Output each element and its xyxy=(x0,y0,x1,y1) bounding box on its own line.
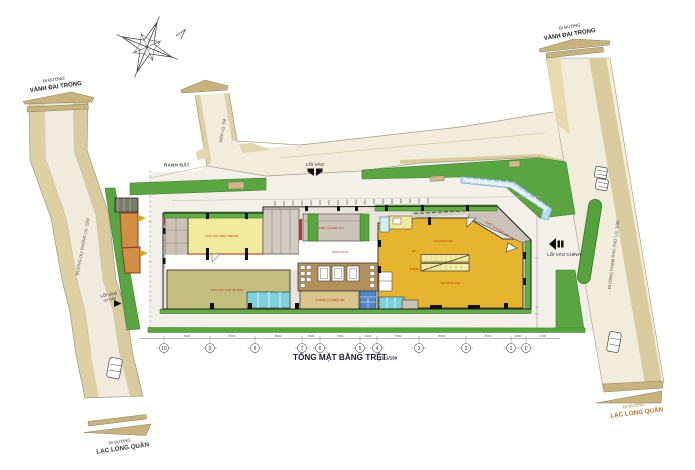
svg-text:8000: 8000 xyxy=(439,334,446,338)
svg-text:3000: 3000 xyxy=(308,334,315,338)
svg-text:1': 1' xyxy=(524,346,528,352)
svg-text:PHÒNG KT ĐIỆN HĐ: PHÒNG KT ĐIỆN HĐ xyxy=(316,297,346,302)
svg-text:TL:1/150: TL:1/150 xyxy=(379,356,398,361)
svg-text:10: 10 xyxy=(161,346,167,352)
svg-text:THƯƠNG MẠI: THƯƠNG MẠI xyxy=(440,281,460,285)
svg-text:8000: 8000 xyxy=(229,334,236,338)
svg-text:2: 2 xyxy=(465,346,468,352)
svg-text:4: 4 xyxy=(376,346,379,352)
svg-text:8200: 8200 xyxy=(184,334,191,338)
svg-text:SẢNH CHUNG CƯ: SẢNH CHUNG CƯ xyxy=(318,225,344,230)
svg-text:7500: 7500 xyxy=(395,334,402,338)
svg-text:3: 3 xyxy=(418,346,421,352)
svg-text:KHU VỰC GIỮ XE ĐẠP: KHU VỰC GIỮ XE ĐẠP xyxy=(211,287,243,292)
svg-text:8: 8 xyxy=(254,346,257,352)
svg-text:6: 6 xyxy=(319,346,322,352)
svg-text:LỐI VÀO: LỐI VÀO xyxy=(306,161,325,167)
svg-text:8000: 8000 xyxy=(485,334,492,338)
svg-text:7: 7 xyxy=(301,346,304,352)
svg-text:SẢNH ĐÓN: SẢNH ĐÓN xyxy=(332,249,348,254)
svg-text:5: 5 xyxy=(359,346,362,352)
svg-text:KHU VUI CHƠI TRẺ EM: KHU VUI CHƠI TRẺ EM xyxy=(206,233,239,238)
svg-text:THƯƠNG MẠI: THƯƠNG MẠI xyxy=(433,239,453,243)
svg-text:LỐI VÀO CHÍNH: LỐI VÀO CHÍNH xyxy=(547,251,581,257)
svg-text:1: 1 xyxy=(510,346,513,352)
svg-text:2500: 2500 xyxy=(515,334,522,338)
svg-text:8000: 8000 xyxy=(275,334,282,338)
svg-text:RANH ĐẤT: RANH ĐẤT xyxy=(164,162,190,168)
svg-text:TỔNG MẶT BẰNG TRỆT: TỔNG MẶT BẰNG TRỆT xyxy=(293,351,387,362)
svg-text:XUỐNG: XUỐNG xyxy=(409,268,418,271)
svg-text:2700: 2700 xyxy=(540,334,547,338)
svg-text:3000: 3000 xyxy=(365,334,372,338)
svg-text:LÊN: LÊN xyxy=(412,250,417,253)
svg-text:9: 9 xyxy=(209,346,212,352)
svg-text:7000: 7000 xyxy=(337,334,344,338)
